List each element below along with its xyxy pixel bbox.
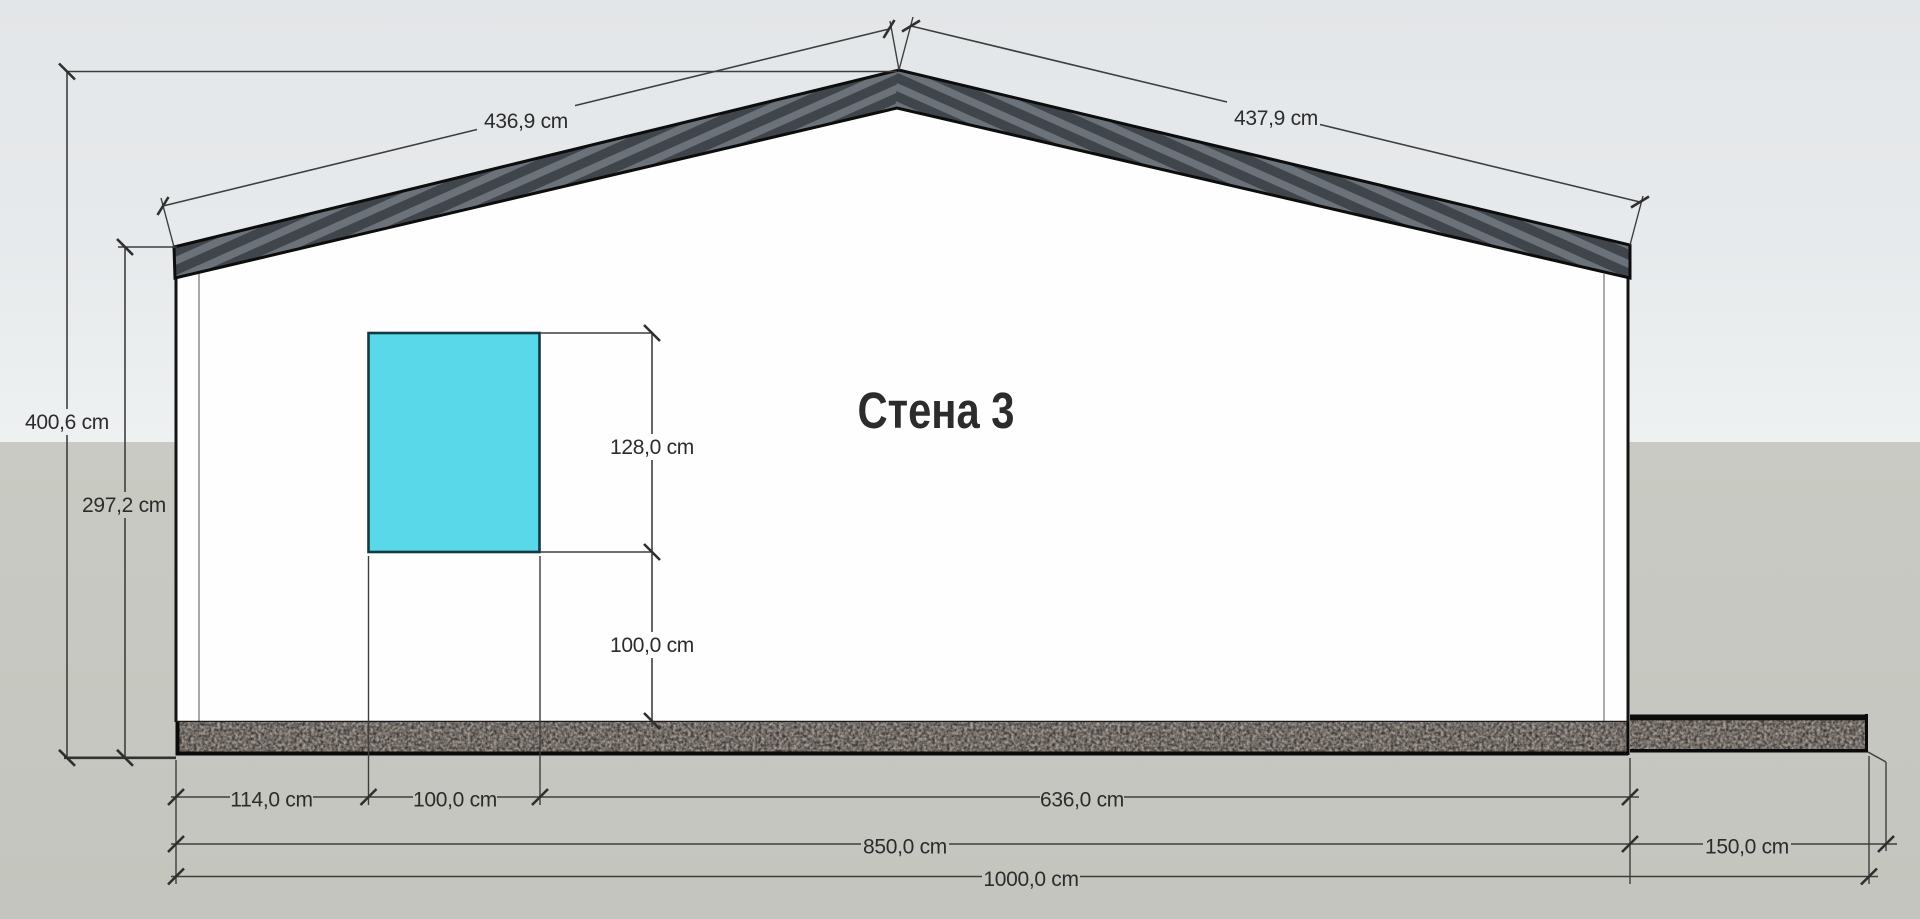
svg-text:850,0 cm: 850,0 cm xyxy=(863,836,947,859)
svg-text:297,2 cm: 297,2 cm xyxy=(82,494,166,517)
svg-text:100,0 cm: 100,0 cm xyxy=(413,789,497,812)
svg-text:400,6 cm: 400,6 cm xyxy=(25,411,109,434)
svg-text:436,9 cm: 436,9 cm xyxy=(484,110,568,133)
svg-text:636,0 cm: 636,0 cm xyxy=(1040,789,1124,812)
svg-text:114,0 cm: 114,0 cm xyxy=(230,789,312,812)
svg-text:100,0 cm: 100,0 cm xyxy=(610,634,694,657)
svg-text:Стена 3: Стена 3 xyxy=(858,382,1015,439)
svg-text:150,0 cm: 150,0 cm xyxy=(1705,836,1789,859)
svg-text:437,9 cm: 437,9 cm xyxy=(1234,107,1318,130)
svg-text:128,0 cm: 128,0 cm xyxy=(610,436,694,459)
svg-text:1000,0 cm: 1000,0 cm xyxy=(983,868,1078,891)
